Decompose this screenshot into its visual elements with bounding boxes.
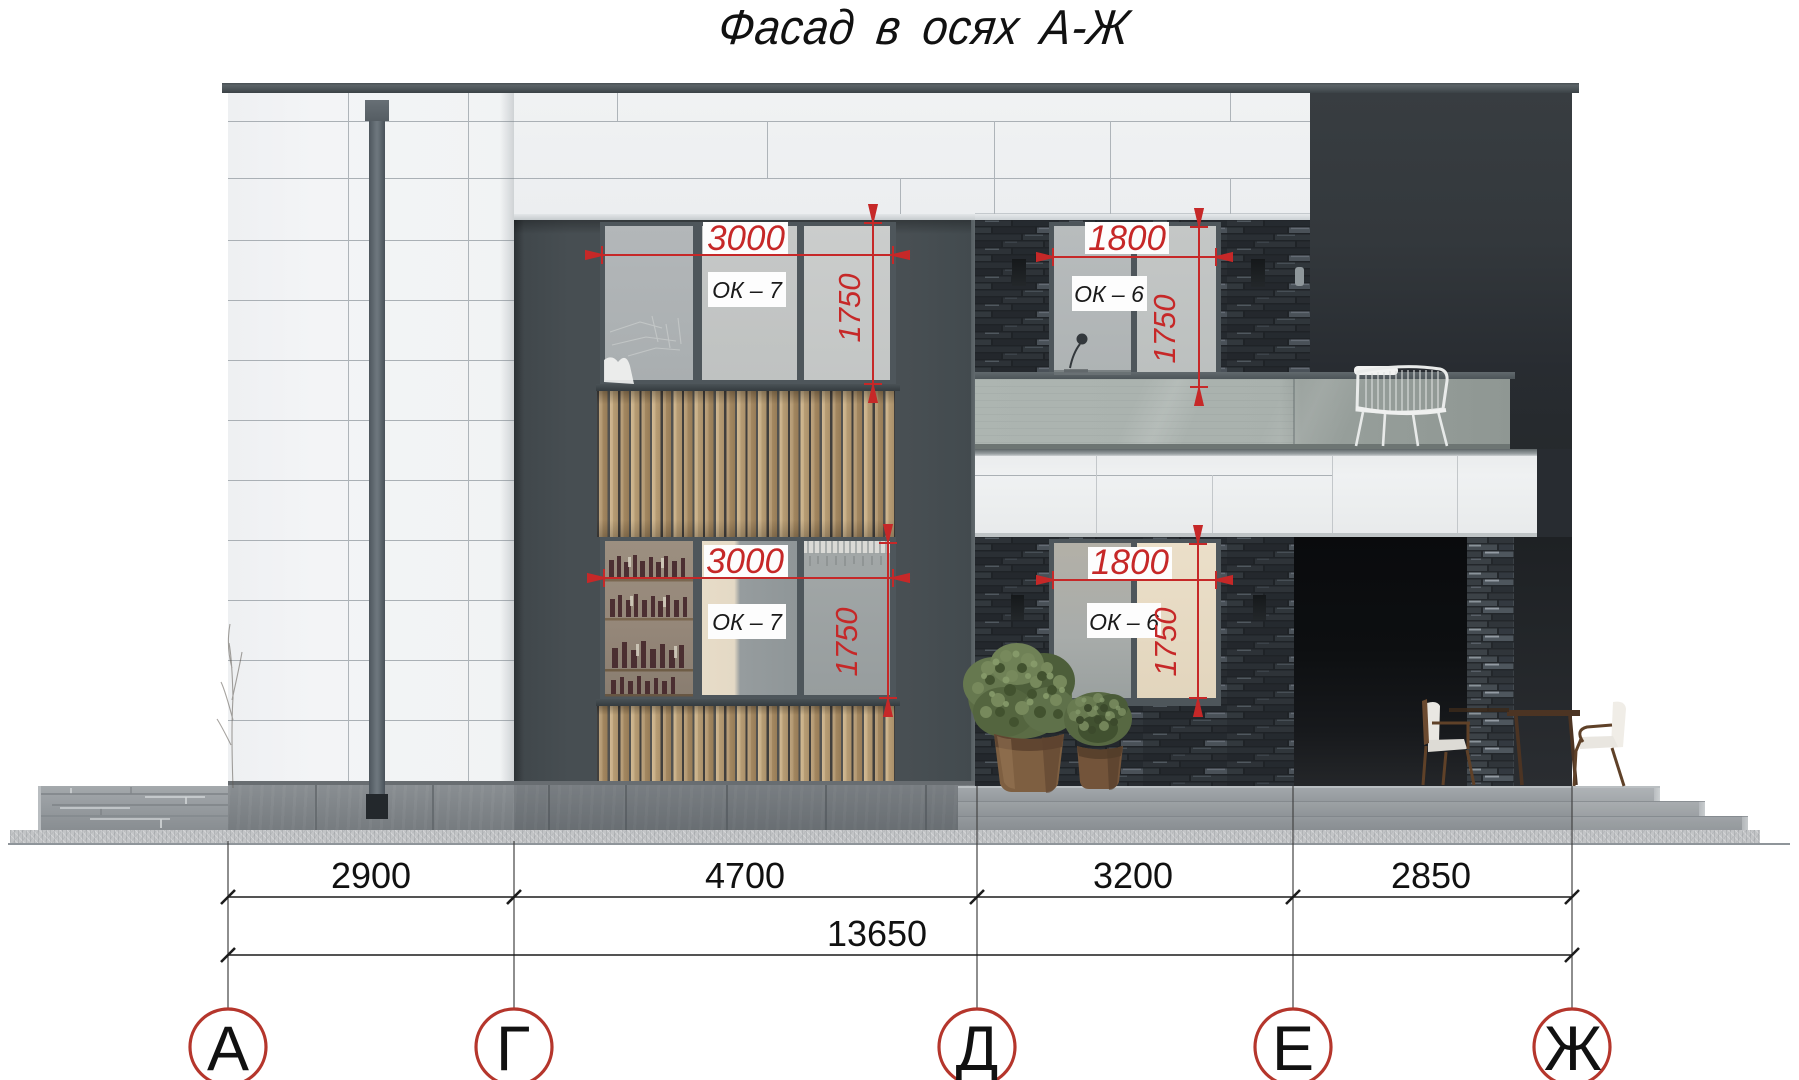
svg-text:ОК – 6: ОК – 6 (1074, 281, 1144, 307)
svg-text:1800: 1800 (1091, 543, 1169, 582)
svg-text:1750: 1750 (1147, 295, 1182, 364)
svg-text:3200: 3200 (1093, 855, 1173, 896)
svg-text:2850: 2850 (1391, 855, 1471, 896)
svg-text:Ж: Ж (1544, 1014, 1602, 1080)
svg-text:1750: 1750 (832, 274, 867, 343)
svg-text:1750: 1750 (829, 608, 864, 677)
svg-text:13650: 13650 (827, 913, 927, 954)
svg-text:Г: Г (496, 1014, 530, 1080)
svg-text:ОК – 7: ОК – 7 (712, 277, 783, 303)
svg-text:2900: 2900 (331, 855, 411, 896)
svg-text:ОК – 7: ОК – 7 (712, 609, 783, 635)
svg-text:1750: 1750 (1148, 608, 1183, 677)
svg-text:4700: 4700 (705, 855, 785, 896)
svg-text:1800: 1800 (1088, 219, 1166, 258)
svg-text:3000: 3000 (706, 542, 784, 581)
svg-text:Е: Е (1272, 1014, 1314, 1080)
svg-text:3000: 3000 (707, 219, 785, 258)
svg-text:А: А (207, 1014, 249, 1080)
svg-text:Д: Д (956, 1014, 999, 1080)
